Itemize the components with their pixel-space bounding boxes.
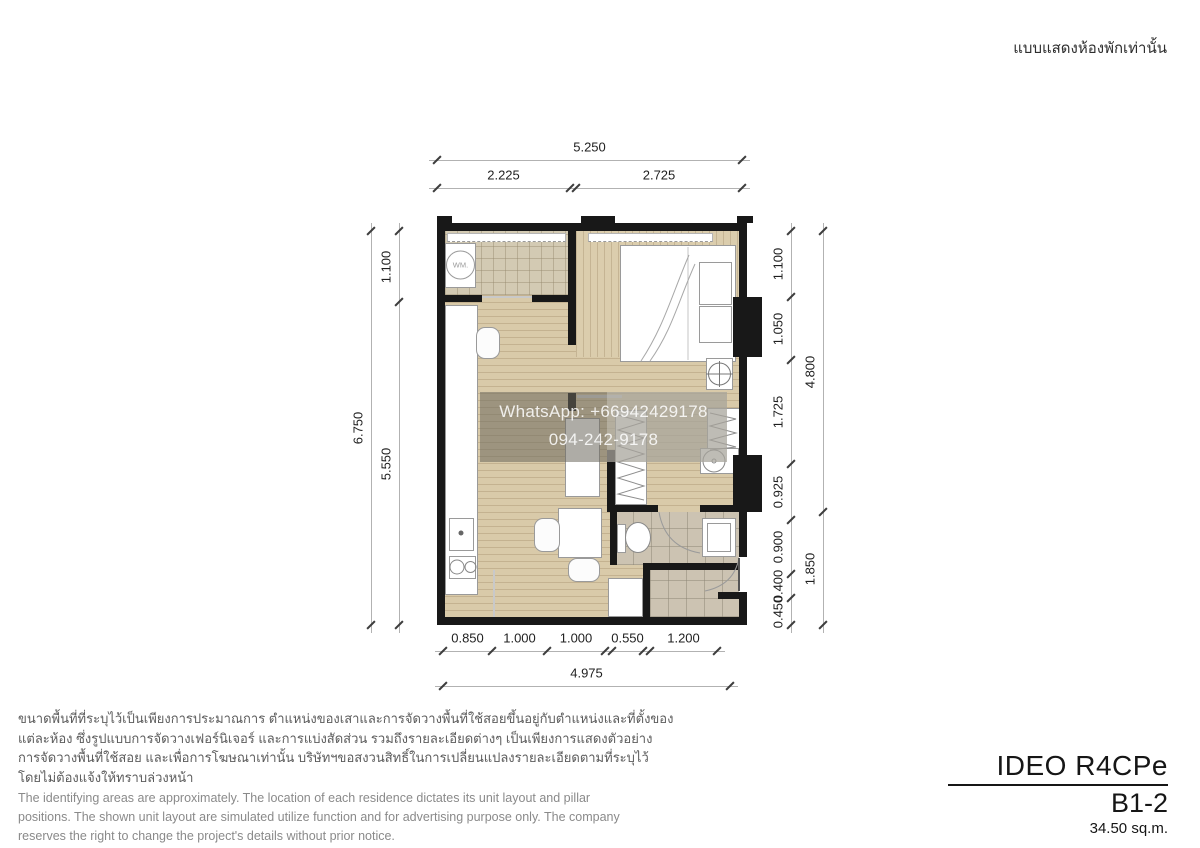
dimension-label: 0.550: [611, 631, 644, 646]
dimension-label: 0.850: [451, 631, 484, 646]
dimension-label: 0.925: [771, 476, 786, 509]
dimension-line: [429, 160, 750, 161]
entry-door-arc: [705, 558, 739, 591]
dimension-label: 1.725: [771, 396, 786, 429]
dimension-line: [429, 188, 750, 189]
watermark-line2: 094-242-9178: [480, 430, 727, 450]
dimension-label: 1.100: [771, 248, 786, 281]
disclaimer-english-line: The identifying areas are approximately.…: [18, 789, 620, 808]
dimension-label: 4.975: [570, 666, 603, 681]
dimension-label: 1.000: [503, 631, 536, 646]
disclaimer-english-line: positions. The shown unit layout are sim…: [18, 808, 620, 827]
bathroom-door-arc: [659, 512, 700, 553]
dimension-line: [371, 223, 372, 633]
floor-plan-sheet: แบบแสดงห้องพักเท่านั้น WM. WhatsApp: +66…: [0, 0, 1200, 848]
dimension-label: 1.200: [667, 631, 700, 646]
dimension-line: [823, 223, 824, 633]
bed-blanket-fold: [641, 255, 689, 361]
dimension-label: 1.050: [771, 312, 786, 345]
dimension-label: 1.850: [803, 552, 818, 585]
disclaimer-english-line: reserves the right to change the project…: [18, 827, 620, 846]
unit-type: B1-2: [948, 788, 1168, 819]
disclaimer-thai: ขนาดพื้นที่ที่ระบุไว้เป็นเพียงการประมาณก…: [18, 709, 673, 787]
stove-burner-1: [450, 560, 464, 574]
sink-faucet: [459, 531, 464, 536]
dimension-line: [435, 686, 738, 687]
dimension-label: 6.750: [351, 412, 366, 445]
dimension-label: 4.800: [803, 355, 818, 388]
dimension-label: 5.550: [379, 447, 394, 480]
dimension-label: 0.450: [771, 595, 786, 628]
disclaimer-thai-line: แต่ละห้อง ซึ่งรูปแบบการจัดวางเฟอร์นิเจอร…: [18, 729, 673, 749]
dimension-label: 0.900: [771, 531, 786, 564]
dimension-label: 2.725: [643, 168, 676, 183]
disclaimer-thai-line: การจัดวางพื้นที่ใช้สอย และเพื่อการโฆษณาเ…: [18, 748, 673, 768]
dimension-label: 1.100: [379, 250, 394, 283]
watermark: WhatsApp: +66942429178 094-242-9178: [480, 392, 727, 462]
disclaimer-english: The identifying areas are approximately.…: [18, 789, 620, 846]
dimension-label: 2.225: [487, 168, 520, 183]
dimension-label: 5.250: [573, 140, 606, 155]
title-block: IDEO R4CPe B1-2 34.50 sq.m.: [948, 750, 1168, 837]
project-name: IDEO R4CPe: [948, 750, 1168, 786]
dimension-label: 1.000: [560, 631, 593, 646]
disclaimer-thai-line: โดยไม่ต้องแจ้งให้ทราบล่วงหน้า: [18, 768, 673, 788]
washer-label: WM.: [453, 261, 468, 270]
dimension-line: [399, 223, 400, 633]
unit-area: 34.50 sq.m.: [948, 820, 1168, 837]
disclaimer-thai-line: ขนาดพื้นที่ที่ระบุไว้เป็นเพียงการประมาณก…: [18, 709, 673, 729]
dimension-line: [435, 651, 725, 652]
stove-burner-2: [465, 562, 476, 573]
watermark-line1: WhatsApp: +66942429178: [480, 402, 727, 422]
